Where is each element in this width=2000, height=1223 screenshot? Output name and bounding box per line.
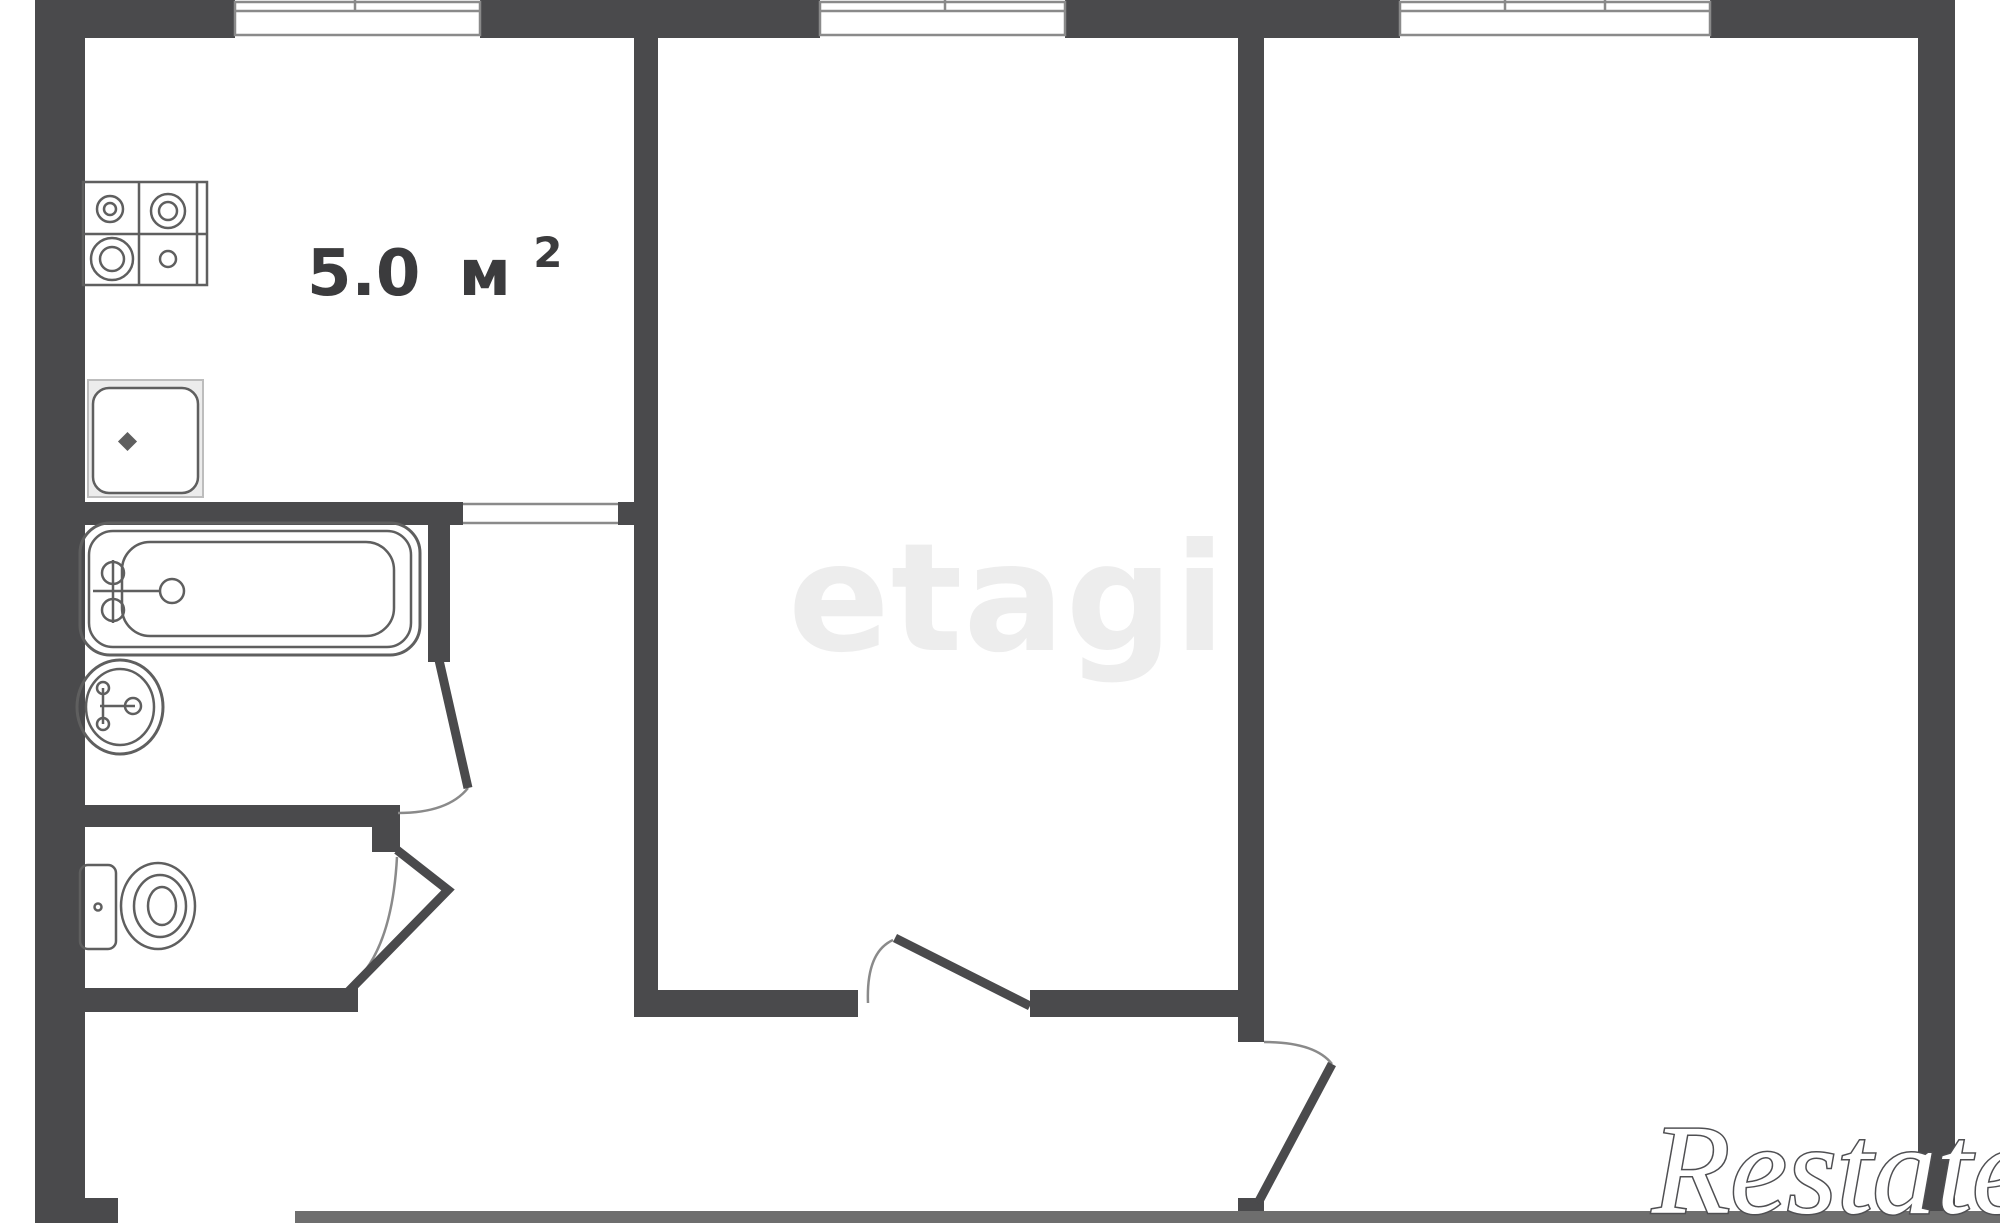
washbasin-icon: [77, 660, 163, 754]
toilet-tank: [80, 865, 116, 949]
bathtub-icon: [80, 523, 420, 655]
wall-kitchen-right: [634, 38, 658, 1017]
kitchen-area-unit: м: [459, 237, 511, 311]
bathroom-door-leaf: [439, 660, 468, 788]
floor-plan: etagi 5.0 м 2 Restate: [0, 0, 2000, 1223]
stove-burner-tl-outer: [97, 196, 123, 222]
window-right-frame: [1400, 2, 1710, 35]
stove-icon: [83, 182, 207, 285]
wall-middleroom-bottom-right: [1030, 990, 1264, 1017]
stove-burner-tr-inner: [159, 202, 177, 220]
window-middle-room: [820, 0, 1065, 35]
stove-burner-bl-inner: [100, 247, 124, 271]
wall-toilet-bottom: [35, 988, 358, 1012]
stove-burner-bl-outer: [91, 238, 133, 280]
wall-bottom-left-corner: [35, 1198, 118, 1223]
watermark-etagi: etagi: [788, 512, 1226, 686]
kitchen-area-label: 5.0 м 2: [307, 228, 562, 311]
toilet-tank-button: [95, 904, 102, 911]
stove-burner-tr-outer: [151, 194, 185, 228]
wall-toilet-jamb: [372, 827, 400, 852]
toilet-icon: [80, 863, 195, 949]
watermark-restate: Restate: [1651, 1099, 2000, 1223]
door-arcs: [352, 788, 1332, 1064]
wall-top-segment-2: [480, 0, 820, 38]
kitchen-passage: [463, 504, 618, 523]
wall-middleroom-bottom-left: [634, 990, 858, 1017]
kitchen-sink-basin: [93, 388, 198, 493]
kitchen-area-superscript: 2: [533, 228, 562, 277]
toilet-bowl-middle: [134, 875, 186, 937]
floor-plan-canvas: etagi 5.0 м 2 Restate: [0, 0, 2000, 1223]
rightroom-door-leaf: [1258, 1064, 1332, 1203]
wall-kitchen-passage-nub: [618, 502, 634, 525]
toilet-bowl-inner: [148, 887, 176, 925]
stove-burner-tl-inner: [104, 203, 116, 215]
middleroom-door-leaf: [895, 938, 1030, 1006]
wall-bathroom-right-stub: [428, 522, 450, 662]
wall-toilet-top: [35, 805, 400, 827]
window-kitchen-frame: [235, 2, 480, 35]
kitchen-sink-icon: [88, 380, 203, 497]
wall-left: [35, 0, 85, 1223]
bathtub-drain: [160, 579, 184, 603]
window-right-room: [1400, 0, 1710, 35]
bathroom-door-arc: [398, 788, 468, 813]
bathtub-inner: [122, 542, 394, 636]
wall-right: [1918, 0, 1955, 1223]
kitchen-area-value: 5.0: [307, 237, 420, 311]
window-kitchen: [235, 0, 480, 35]
bathtub-middle: [89, 531, 411, 647]
rightroom-door-arc: [1264, 1042, 1332, 1064]
wall-middle-right: [1238, 38, 1264, 1042]
toilet-door-leaf: [348, 850, 448, 992]
stove-burner-br: [160, 251, 176, 267]
door-leaves: [348, 660, 1332, 1203]
wall-top-segment-3: [1065, 0, 1400, 38]
middleroom-door-arc: [868, 940, 893, 1003]
window-middle-frame: [820, 2, 1065, 35]
windows: [235, 0, 1710, 35]
